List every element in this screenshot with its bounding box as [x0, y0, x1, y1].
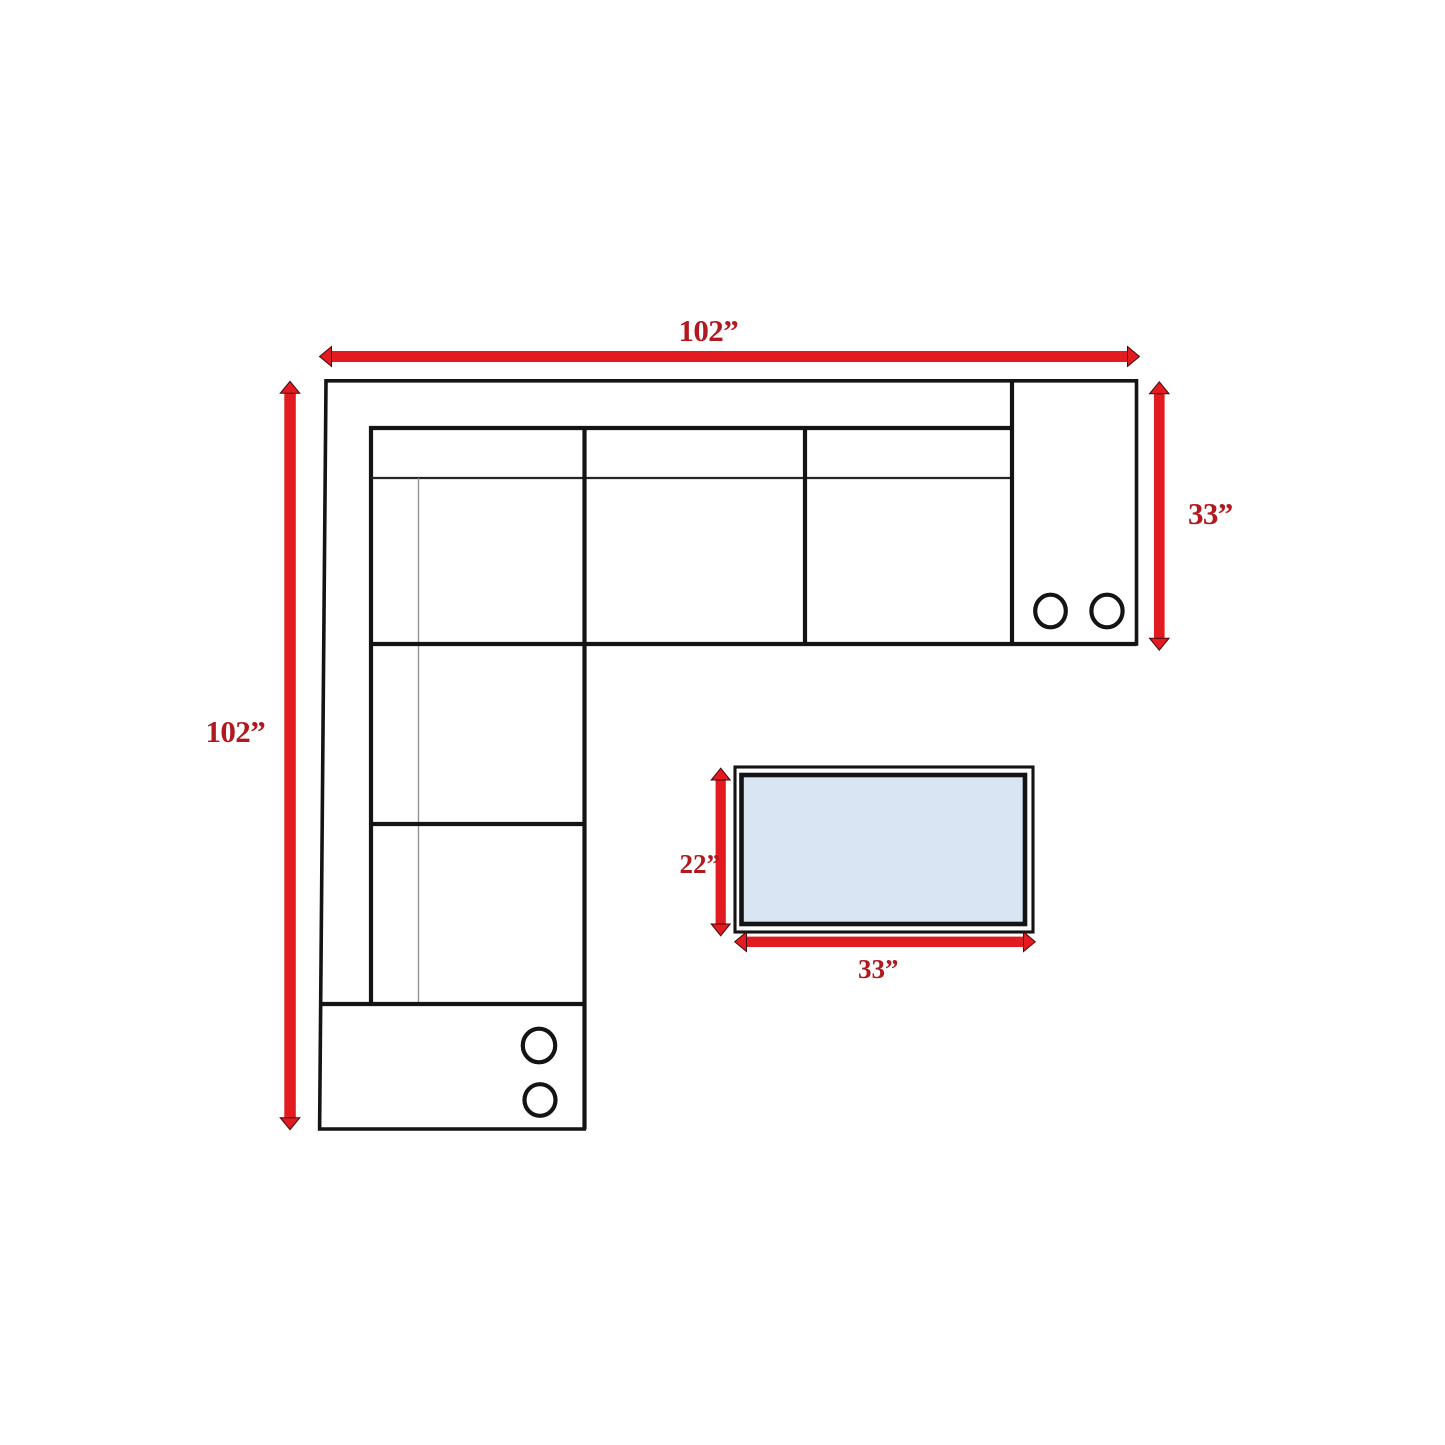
svg-text:102”: 102” — [679, 313, 739, 348]
svg-text:33”: 33” — [858, 954, 899, 984]
svg-text:22”: 22” — [680, 849, 721, 879]
svg-text:33”: 33” — [1188, 496, 1233, 531]
svg-text:102”: 102” — [206, 714, 266, 749]
